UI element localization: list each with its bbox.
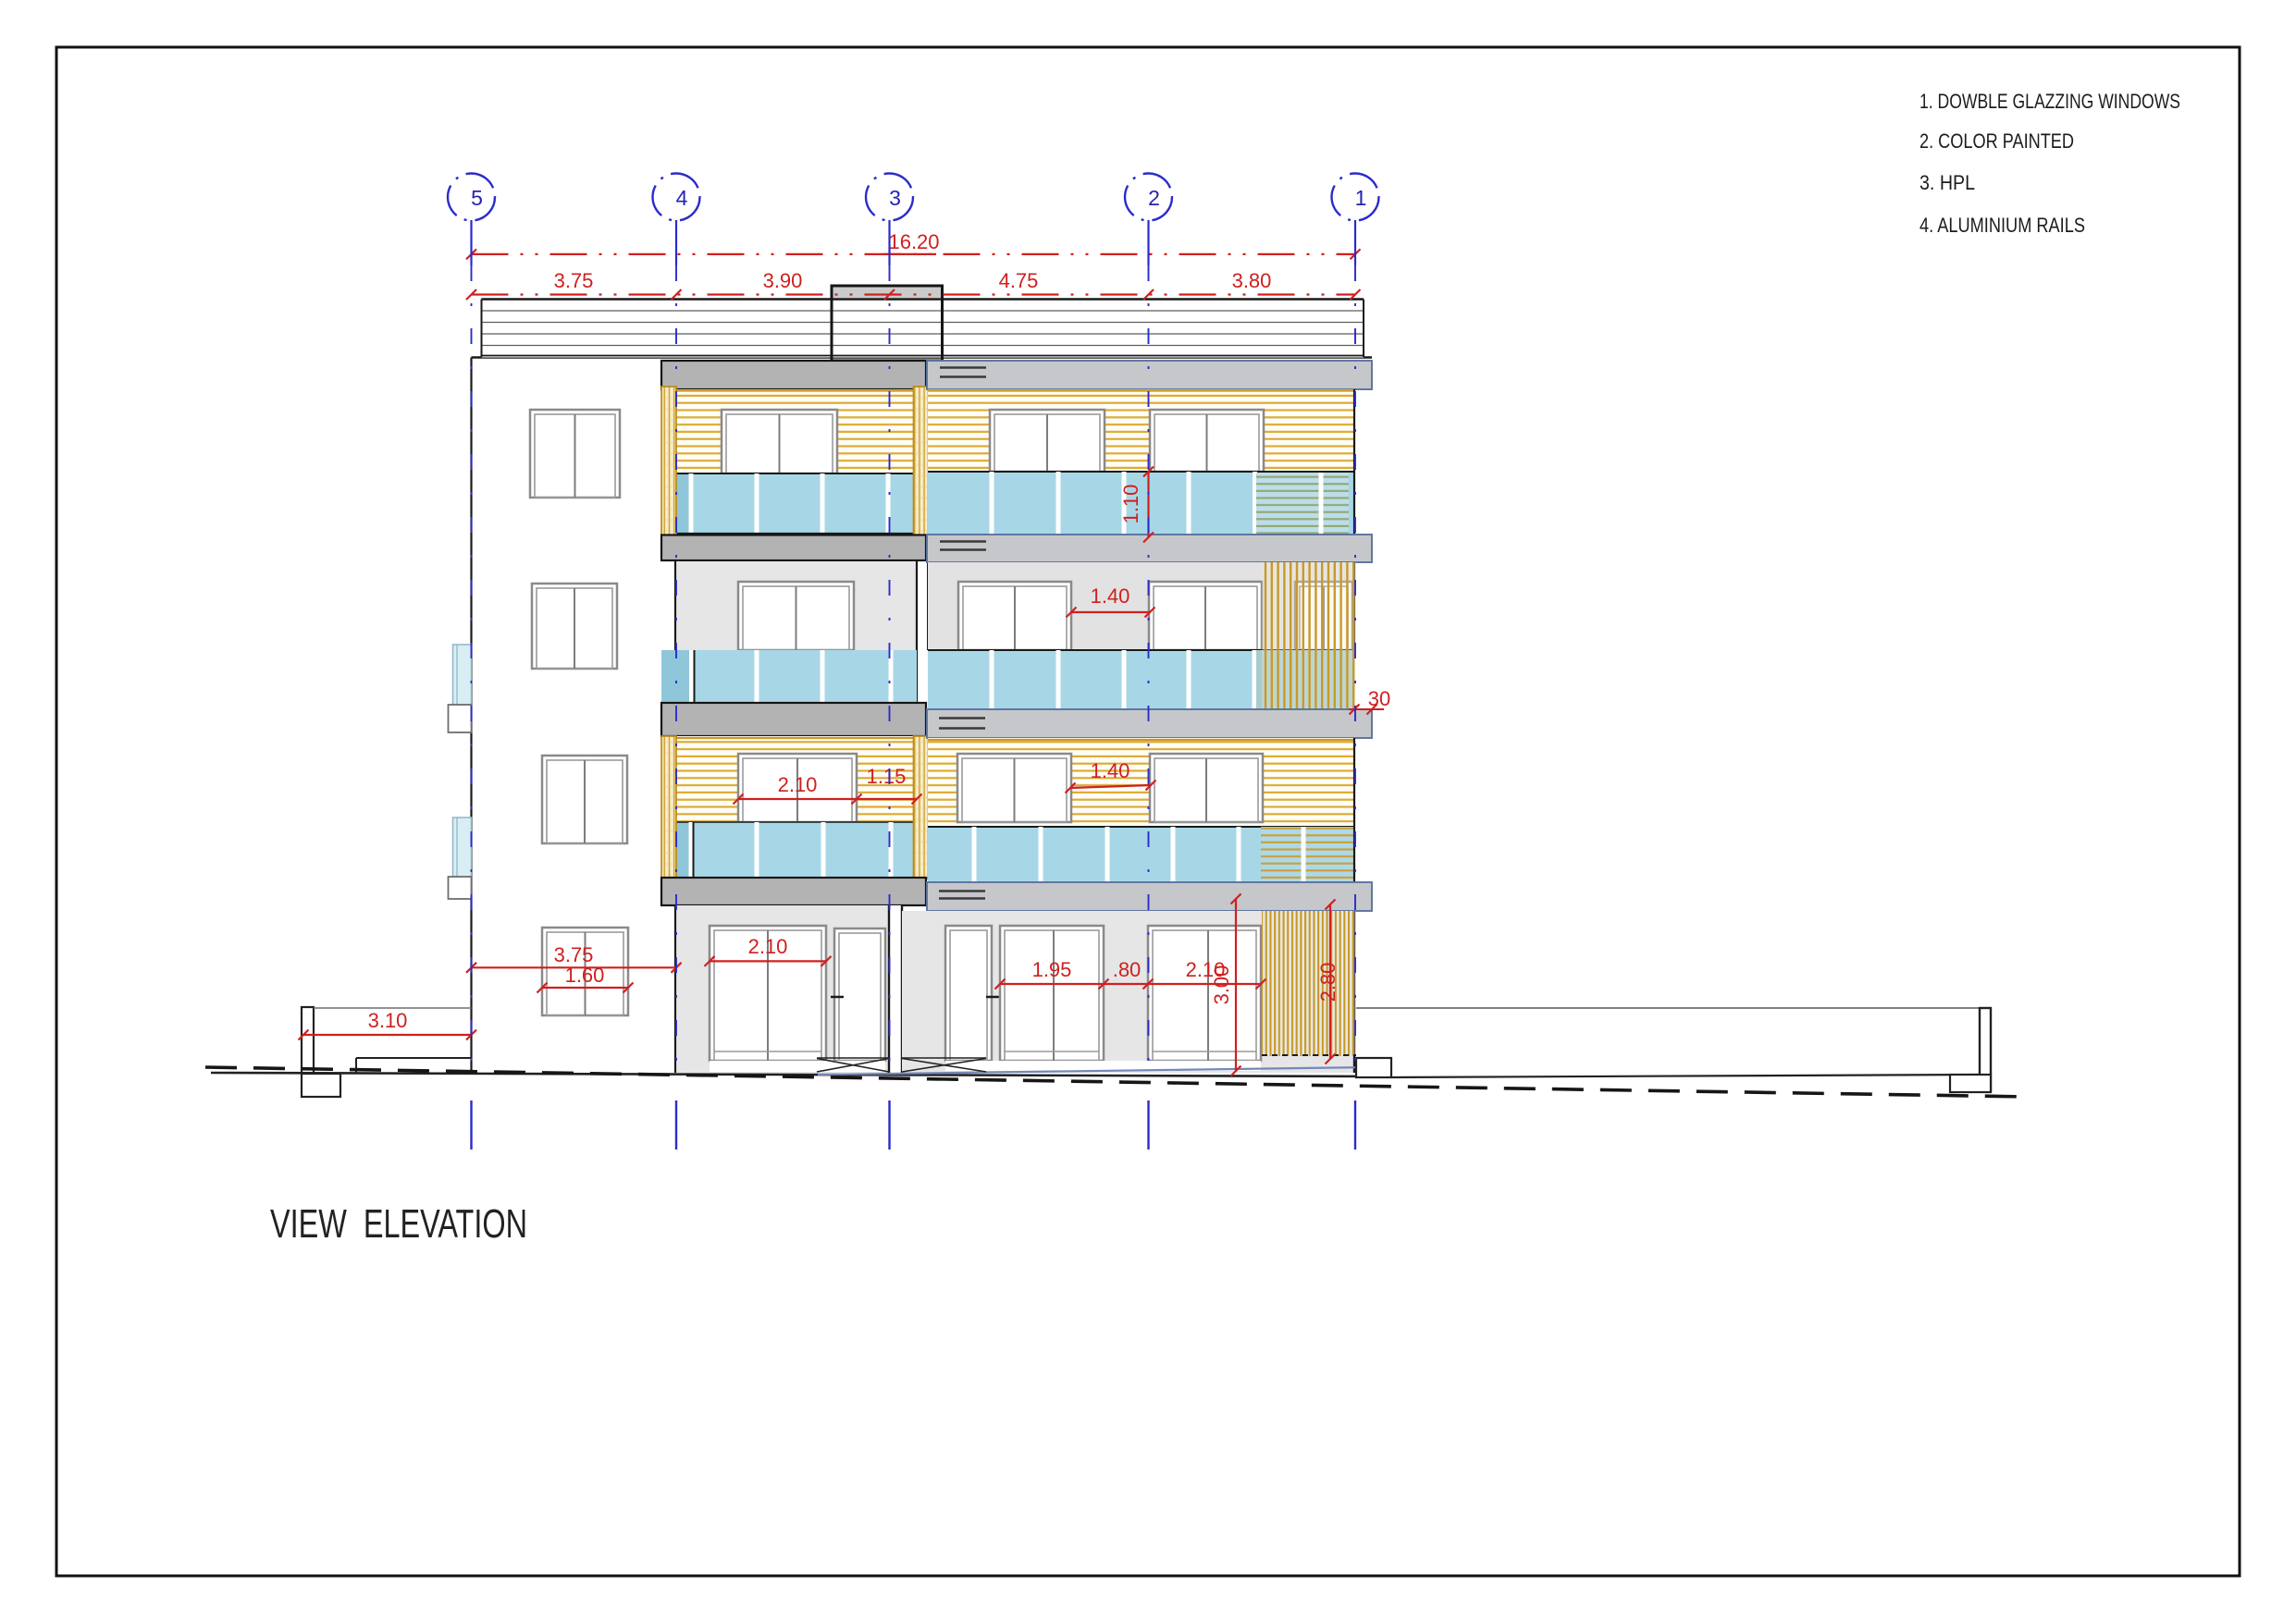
svg-text:1.40: 1.40 <box>1091 759 1130 782</box>
svg-text:3.00: 3.00 <box>1210 965 1233 1005</box>
svg-text:3.10: 3.10 <box>368 1009 408 1032</box>
svg-text:2. COLOR PAINTED: 2. COLOR PAINTED <box>1920 129 2074 153</box>
svg-text:VIEW ELEVATION: VIEW ELEVATION <box>270 1201 527 1247</box>
svg-text:.80: .80 <box>1113 958 1142 981</box>
svg-text:3.90: 3.90 <box>763 269 803 292</box>
svg-text:4.75: 4.75 <box>999 269 1039 292</box>
svg-text:1.60: 1.60 <box>565 964 605 987</box>
svg-text:5: 5 <box>471 186 483 210</box>
svg-text:2: 2 <box>1148 186 1160 210</box>
svg-text:2.10: 2.10 <box>778 773 818 796</box>
svg-text:1. DOWBLE GLAZZING WINDOWS: 1. DOWBLE GLAZZING WINDOWS <box>1920 90 2180 113</box>
svg-text:1: 1 <box>1355 186 1367 210</box>
svg-text:3.75: 3.75 <box>554 269 594 292</box>
svg-text:30: 30 <box>1368 687 1390 710</box>
svg-text:1.95: 1.95 <box>1032 958 1072 981</box>
svg-text:1.40: 1.40 <box>1091 584 1130 608</box>
svg-text:2.80: 2.80 <box>1316 963 1339 1002</box>
svg-text:4. ALUMINIUM RAILS: 4. ALUMINIUM RAILS <box>1920 214 2085 237</box>
svg-text:1.10: 1.10 <box>1119 485 1142 524</box>
svg-text:3. HPL: 3. HPL <box>1920 171 1975 194</box>
svg-text:1.15: 1.15 <box>867 765 907 788</box>
svg-text:4: 4 <box>676 186 688 210</box>
svg-text:16.20: 16.20 <box>888 230 939 253</box>
svg-text:3.80: 3.80 <box>1232 269 1272 292</box>
svg-text:3: 3 <box>889 186 901 210</box>
svg-text:2.10: 2.10 <box>748 935 788 958</box>
